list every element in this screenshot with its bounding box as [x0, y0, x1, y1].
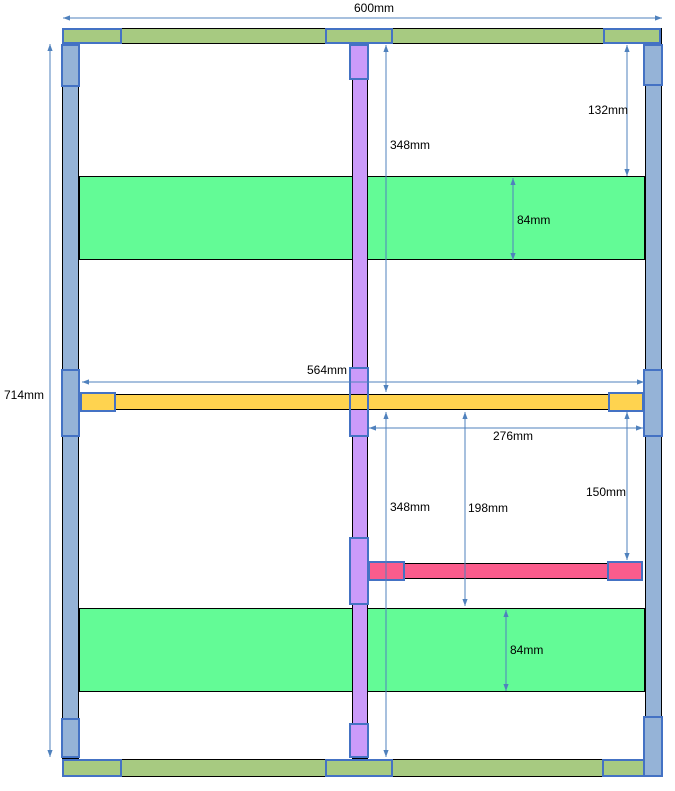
connector-top-rail-center	[325, 28, 393, 44]
connector-divider-mid-outline	[349, 367, 369, 437]
dimension-overall-width	[63, 15, 662, 20]
connector-support-right	[607, 561, 643, 581]
dim-label-top-shelf-depth: 84mm	[517, 214, 550, 227]
dim-label-support-drop: 150mm	[586, 486, 626, 499]
connector-divider-top	[349, 44, 369, 80]
dim-label-midrail-length: 564mm	[307, 364, 347, 377]
connector-midrail-left	[80, 392, 116, 412]
connector-bottom-rail-center	[325, 759, 393, 777]
connector-support-left	[368, 561, 405, 581]
connector-divider-bottom	[349, 723, 369, 758]
dim-label-bot-shelf-depth: 84mm	[510, 644, 543, 657]
support-rail	[368, 563, 643, 579]
connector-left-stile-mid	[61, 369, 80, 437]
connector-right-stile-mid	[643, 369, 663, 437]
connector-right-stile-top	[643, 44, 663, 86]
dim-label-overall-height: 714mm	[4, 389, 44, 402]
dim-label-top-gap: 132mm	[588, 104, 628, 117]
connector-divider-support	[349, 537, 369, 605]
connector-midrail-right	[608, 392, 644, 412]
dim-label-lower-section: 348mm	[390, 501, 430, 514]
diagram-canvas: 600mm714mm132mm348mm84mm564mm276mm348mm1…	[0, 0, 675, 791]
dim-label-lower-gap: 198mm	[468, 502, 508, 515]
connector-right-stile-bottom	[643, 716, 663, 777]
dimension-lower-section	[383, 412, 388, 757]
connector-left-stile-bottom	[61, 718, 80, 758]
connector-top-rail-right	[603, 28, 661, 44]
dim-label-overall-width: 600mm	[354, 2, 394, 15]
connector-left-stile-top	[61, 44, 80, 87]
dim-label-support-length: 276mm	[493, 430, 533, 443]
dimension-overall-height	[47, 44, 52, 757]
connector-bottom-rail-left	[62, 759, 122, 777]
connector-top-rail-left	[62, 28, 122, 44]
dim-label-upper-section: 348mm	[390, 139, 430, 152]
